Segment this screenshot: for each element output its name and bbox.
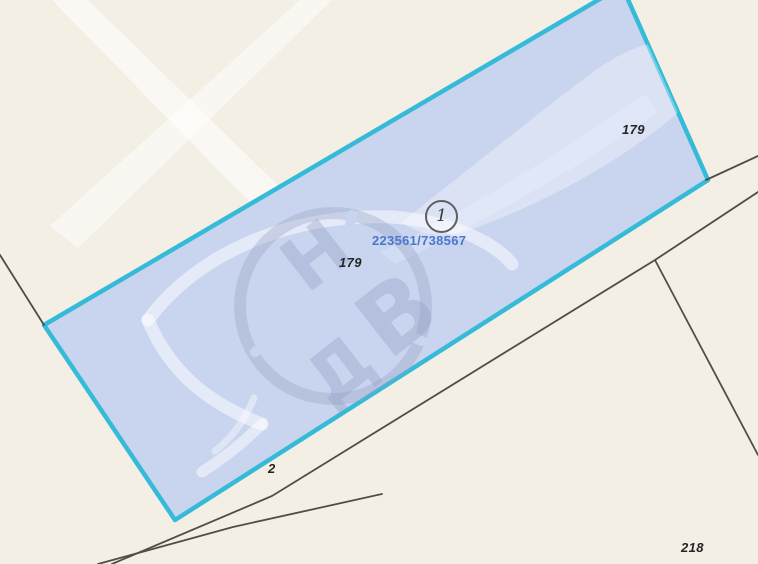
cadastral-map-layer: Н В Д [0, 0, 758, 564]
parcel-marker[interactable]: 1 [425, 200, 458, 233]
road-line-secondary [98, 494, 382, 564]
area-label-179-center: 179 [339, 255, 362, 270]
parcel-id-label[interactable]: 223561/738567 [372, 233, 466, 248]
map-canvas: Н В Д 179 179 2 218 223561/738567 1 [0, 0, 758, 564]
area-label-218: 218 [681, 540, 704, 555]
road-branch-line [655, 260, 758, 455]
boundary-line-left [0, 255, 44, 325]
boundary-line-right-spur [706, 156, 758, 180]
parcel-marker-number: 1 [436, 206, 447, 226]
road-label-2: 2 [268, 461, 276, 476]
area-label-179-right: 179 [622, 122, 645, 137]
